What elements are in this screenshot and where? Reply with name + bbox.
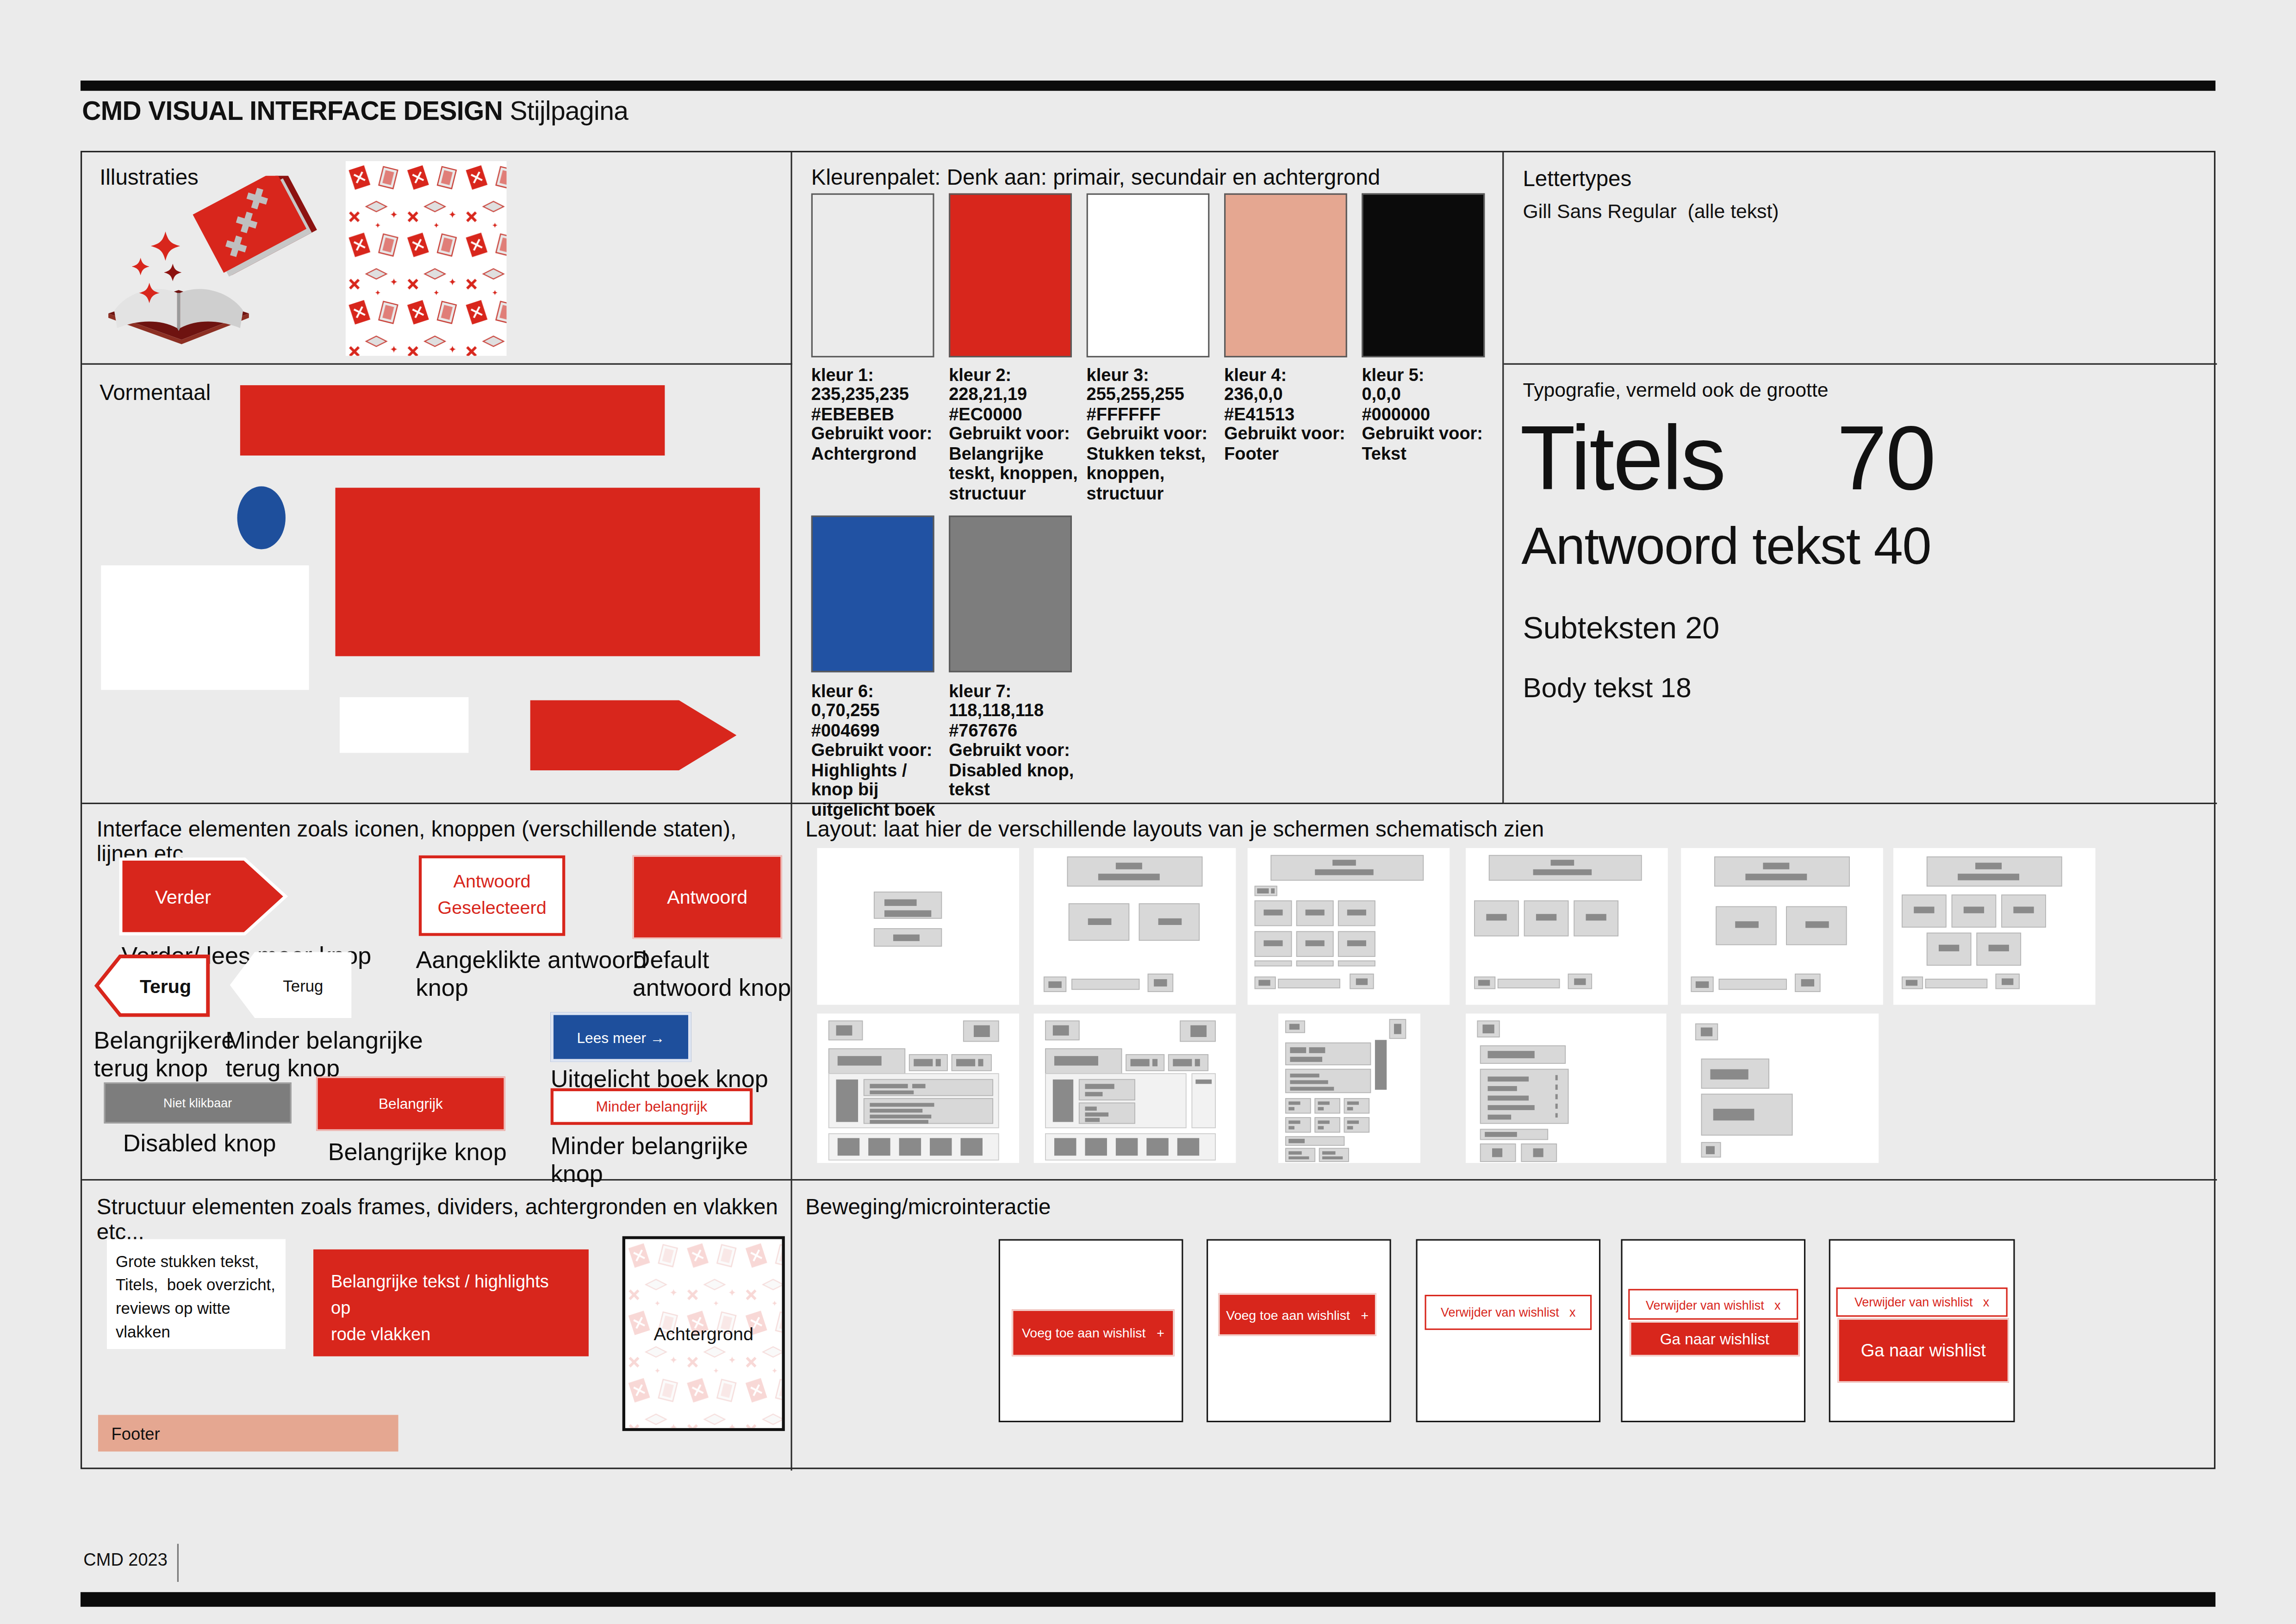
remove-wishlist-button-3[interactable]: Verwijder van wishlist x [1836, 1287, 2008, 1317]
color-7-rgb: 118,118,118 [949, 702, 1081, 722]
microinteraction-frame-5: Verwijder van wishlist x Ga naar wishlis… [1829, 1239, 2015, 1422]
open-book-illustration [97, 229, 261, 355]
color-label-4: kleur 4: 236,0,0 #E41513 Gebruikt voor: … [1224, 366, 1356, 465]
section-structuur: Structuur elementen zoals frames, divide… [82, 1181, 792, 1470]
bottom-rule [81, 1592, 2215, 1607]
color-label-7: kleur 7: 118,118,118 #767676 Gebruikt vo… [949, 682, 1081, 800]
color-swatch-6 [811, 516, 934, 673]
shape-red-bar [240, 385, 665, 456]
antwoord-default-button[interactable]: Antwoord [633, 856, 782, 939]
microinteraction-frame-2: Voeg toe aan wishlist + [1207, 1239, 1391, 1422]
color-5-rgb: 0,0,0 [1362, 386, 1493, 406]
color-swatch-7 [949, 516, 1072, 673]
terug-secondary-caption: Minder belangrijke terug knop [225, 1027, 433, 1084]
section-typografie: Typografie, vermeld ook de grootte Titel… [1504, 365, 2217, 804]
color-7-name: kleur 7: [949, 682, 1081, 702]
shape-white-small-rect [340, 697, 468, 753]
terug-primary-button[interactable]: Terug [93, 954, 211, 1018]
microinteraction-frame-3: Verwijder van wishlist x [1416, 1239, 1600, 1422]
typografie-antwoord-sample: Antwoord tekst 40 [1521, 520, 1931, 573]
top-rule [81, 81, 2215, 91]
verder-button-label: Verder [118, 857, 247, 936]
color-3-used: Stukken tekst, knoppen, structuur [1087, 445, 1219, 504]
color-swatch-3 [1087, 194, 1210, 357]
structuur-achtergrond-box: Achtergrond [622, 1236, 785, 1431]
section-layout: Layout: laat hier de verschillende layou… [792, 804, 2217, 1181]
section-vormentaal: Vormentaal [82, 365, 792, 804]
section-illustraties: Illustraties [82, 152, 792, 365]
antwoord-selected-caption: Aangeklikte antwoord knop [416, 946, 647, 1003]
kleurenpalet-label: Kleurenpalet: Denk aan: primair, secunda… [811, 164, 1485, 189]
color-1-used-label: Gebruikt voor: [811, 425, 943, 445]
color-7-used-label: Gebruikt voor: [949, 742, 1081, 762]
add-wishlist-button[interactable]: Voeg toe aan wishlist + [1012, 1310, 1174, 1356]
color-3-used-label: Gebruikt voor: [1087, 425, 1219, 445]
color-4-name: kleur 4: [1224, 366, 1356, 386]
lettertypes-font-line: Gill Sans Regular (alle tekst) [1523, 200, 1779, 222]
color-5-used: Tekst [1362, 445, 1493, 465]
color-3-rgb: 255,255,255 [1087, 386, 1219, 406]
layout-thumb-two-cards-b [1681, 848, 1883, 1005]
page-title-rest: Stijlpagina [510, 97, 628, 126]
color-5-name: kleur 5: [1362, 366, 1493, 386]
structuur-achtergrond-label: Achtergrond [625, 1239, 782, 1428]
color-swatch-1 [811, 194, 934, 357]
color-6-name: kleur 6: [811, 682, 943, 702]
illustraties-label: Illustraties [100, 164, 199, 189]
page-title-bold: CMD VISUAL INTERFACE DESIGN [82, 97, 503, 126]
color-label-5: kleur 5: 0,0,0 #000000 Gebruikt voor: Te… [1362, 366, 1493, 465]
color-4-rgb: 236,0,0 [1224, 386, 1356, 406]
microinteraction-frame-4: Verwijder van wishlist x Ga naar wishlis… [1621, 1239, 1805, 1422]
terug-secondary-button[interactable]: Terug [225, 950, 354, 1019]
shape-red-arrow [530, 700, 736, 770]
shape-red-rect [336, 488, 760, 656]
layout-thumb-book-detail [817, 1013, 1019, 1163]
typografie-body-sample: Body tekst 18 [1523, 674, 1691, 701]
color-4-used: Footer [1224, 445, 1356, 465]
layout-label: Layout: laat hier de verschillende layou… [805, 816, 2211, 841]
color-label-6: kleur 6: 0,70,255 #004699 Gebruikt voor:… [811, 682, 943, 820]
microinteraction-frame-1: Voeg toe aan wishlist + [999, 1239, 1183, 1422]
color-1-used: Achtergrond [811, 445, 943, 465]
footer-divider [177, 1544, 179, 1582]
color-6-rgb: 0,70,255 [811, 702, 943, 722]
section-lettertypes: Lettertypes Gill Sans Regular (alle teks… [1504, 152, 2217, 365]
color-4-hex: #E41513 [1224, 406, 1356, 425]
remove-wishlist-button[interactable]: Verwijder van wishlist x [1425, 1295, 1592, 1330]
layout-thumb-three-cards [1466, 848, 1668, 1005]
layout-thumb-two-cards [1034, 848, 1236, 1005]
terug-primary-label: Terug [120, 954, 211, 1018]
lettertypes-label: Lettertypes [1523, 166, 1631, 191]
book-pattern-swatch [346, 161, 507, 356]
color-5-hex: #000000 [1362, 406, 1493, 425]
color-3-name: kleur 3: [1087, 366, 1219, 386]
beweging-label: Beweging/microinteractie [805, 1194, 1051, 1219]
disabled-button[interactable]: Niet klikbaar [104, 1082, 292, 1124]
layout-thumb-simple [1681, 1013, 1879, 1163]
section-interface: Interface elementen zoals iconen, knoppe… [82, 804, 792, 1181]
styleguide-poster: CMD VISUAL INTERFACE DESIGN Stijlpagina … [0, 0, 2296, 1624]
layout-thumb-five-cards [1893, 848, 2096, 1005]
disabled-caption: Disabled knop [123, 1129, 276, 1158]
structuur-white-box: Grote stukken tekst, Titels, boek overzi… [107, 1239, 286, 1349]
antwoord-selected-button[interactable]: Antwoord Geselecteerd [419, 856, 565, 936]
layout-thumb-list [1466, 1013, 1666, 1163]
typografie-titels-sample: Titels 70 [1520, 413, 1935, 504]
add-wishlist-button-pressed[interactable]: Voeg toe aan wishlist + [1218, 1293, 1376, 1336]
color-swatch-4 [1224, 194, 1347, 357]
color-2-hex: #EC0000 [949, 406, 1081, 425]
structuur-red-box: Belangrijke tekst / highlights op rode v… [313, 1249, 589, 1356]
typografie-label: Typografie, vermeld ook de grootte [1523, 379, 1828, 401]
color-2-used: Belangrijke teskt, knoppen, structuur [949, 445, 1081, 504]
page-title: CMD VISUAL INTERFACE DESIGN Stijlpagina [82, 97, 628, 127]
vormentaal-label: Vormentaal [100, 379, 211, 404]
shape-blue-ellipse [237, 486, 286, 549]
color-2-rgb: 228,21,19 [949, 386, 1081, 406]
minder-belangrijk-button[interactable]: Minder belangrijk [551, 1088, 753, 1125]
color-6-hex: #004699 [811, 722, 943, 742]
shape-white-rect [101, 565, 309, 690]
layout-thumb-review-grid [1278, 1013, 1420, 1163]
terug-secondary-label: Terug [255, 950, 352, 1019]
color-label-2: kleur 2: 228,21,19 #EC0000 Gebruikt voor… [949, 366, 1081, 504]
section-kleurenpalet: Kleurenpalet: Denk aan: primair, secunda… [792, 152, 1504, 804]
remove-wishlist-button-2[interactable]: Verwijder van wishlist x [1628, 1289, 1798, 1319]
color-label-3: kleur 3: 255,255,255 #FFFFFF Gebruikt vo… [1087, 366, 1219, 504]
section-beweging: Beweging/microinteractie Voeg toe aan wi… [792, 1181, 2217, 1470]
color-1-name: kleur 1: [811, 366, 943, 386]
goto-wishlist-button-large[interactable]: Ga naar wishlist [1838, 1318, 2009, 1383]
layout-thumb-intro [817, 848, 1019, 1005]
structuur-footer-box: Footer [98, 1415, 398, 1451]
verder-button[interactable]: Verder [118, 857, 288, 936]
color-5-used-label: Gebruikt voor: [1362, 425, 1493, 445]
lees-meer-button[interactable]: Lees meer → [551, 1012, 691, 1062]
color-swatch-2 [949, 194, 1072, 357]
layout-thumb-book-detail-alt [1034, 1013, 1236, 1163]
antwoord-default-caption: Default antwoord knop [633, 946, 805, 1003]
color-label-1: kleur 1: 235,235,235 #EBEBEB Gebruikt vo… [811, 366, 943, 465]
footer-credit: CMD 2023 [83, 1549, 167, 1570]
styleguide-grid: Illustraties [81, 151, 2215, 1469]
goto-wishlist-button[interactable]: Ga naar wishlist [1630, 1321, 1799, 1356]
color-1-hex: #EBEBEB [811, 406, 943, 425]
color-6-used-label: Gebruikt voor: [811, 742, 943, 762]
color-4-used-label: Gebruikt voor: [1224, 425, 1356, 445]
color-7-hex: #767676 [949, 722, 1081, 742]
color-2-name: kleur 2: [949, 366, 1081, 386]
color-7-used: Disabled knop, tekst [949, 761, 1081, 800]
color-2-used-label: Gebruikt voor: [949, 425, 1081, 445]
belangrijk-caption: Belangrijke knop [328, 1138, 507, 1167]
layout-thumb-grid [1248, 848, 1450, 1005]
typografie-subteksten-sample: Subteksten 20 [1523, 612, 1719, 643]
color-3-hex: #FFFFFF [1087, 406, 1219, 425]
color-1-rgb: 235,235,235 [811, 386, 943, 406]
belangrijk-button[interactable]: Belangrijk [316, 1076, 505, 1131]
color-swatch-5 [1362, 194, 1485, 357]
